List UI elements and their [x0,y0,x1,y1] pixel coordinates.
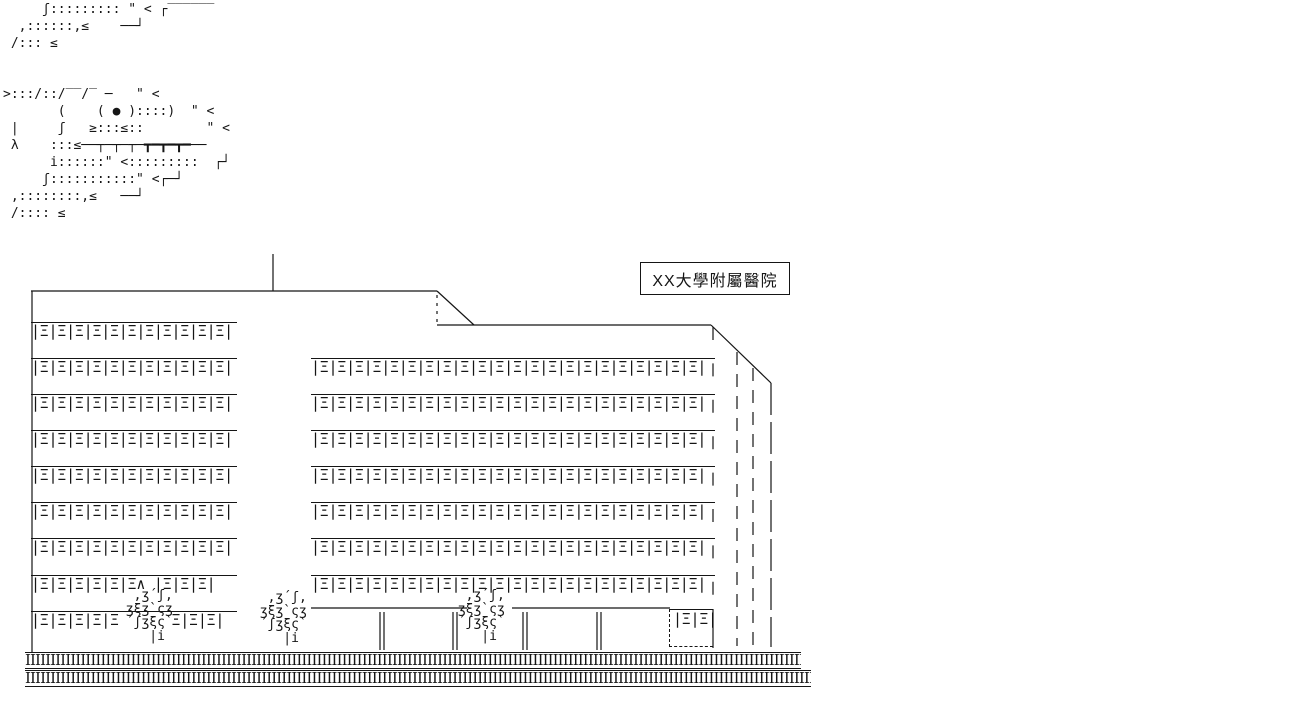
hospital-name: XX大學附屬醫院 [652,267,777,291]
aa-line: ´ʃʒξς` [450,616,505,630]
aa-line: ʃ:::::::::::" <┌─┘ [3,171,230,188]
roof-junction-diagonal [437,291,474,325]
aa-line: ʒξʒ`ςʒ [118,603,173,617]
aa-line: λ :::≤──┬─┬─┬─┳━┳━┳━── [3,137,230,154]
tree: ,ʒ´ʃ, ʒξʒ`ςʒ ´ʃʒξς` |i [252,591,307,645]
aa-line: ,ʒ´ʃ, [118,589,173,603]
aa-line: ,ʒ´ʃ, [252,591,307,605]
ground-hatch: IIIIIIIIIIIIIIIIIIIIIIIIIIIIIIIIIIIIIIII… [25,652,801,669]
aa-line: ʒξʒ`ςʒ [252,605,307,619]
window-row: |Ξ|Ξ|Ξ|Ξ|Ξ|Ξ|Ξ|Ξ|Ξ|Ξ|Ξ|Ξ|Ξ|Ξ|Ξ|Ξ|Ξ|Ξ|Ξ|Ξ… [311,358,715,376]
window-row: |Ξ|Ξ|Ξ|Ξ|Ξ|Ξ|Ξ|Ξ|Ξ|Ξ|Ξ|Ξ|Ξ|Ξ|Ξ|Ξ|Ξ|Ξ|Ξ|Ξ… [311,430,715,448]
window-row: |Ξ|Ξ|Ξ|Ξ|Ξ|Ξ|Ξ|Ξ|Ξ|Ξ|Ξ| [31,322,237,340]
window-row: |Ξ|Ξ|Ξ|Ξ|Ξ|Ξ|Ξ|Ξ|Ξ|Ξ|Ξ|Ξ|Ξ|Ξ|Ξ|Ξ|Ξ|Ξ|Ξ|Ξ… [311,538,715,556]
tree: ,ʒ´ʃ, ʒξʒ`ςʒ ´ʃʒξς` |i [118,589,173,643]
aa-line [3,69,230,86]
window-row: |Ξ|Ξ|Ξ|Ξ|Ξ|Ξ|Ξ|Ξ|Ξ|Ξ|Ξ| [31,394,237,412]
window-row: |Ξ|Ξ|Ξ|Ξ|Ξ|Ξ|Ξ|Ξ|Ξ|Ξ|Ξ| [31,466,237,484]
window-row: |Ξ|Ξ|Ξ|Ξ|Ξ|Ξ|Ξ|Ξ|Ξ|Ξ|Ξ| [31,502,237,520]
entrance-kiosk: |Ξ|Ξ| [669,609,713,647]
aa-line: | ʃ ≥:::≤:: " < [3,120,230,137]
window-row: |Ξ|Ξ|Ξ|Ξ|Ξ|Ξ|Ξ|Ξ|Ξ|Ξ|Ξ| [31,358,237,376]
aa-line: /:::: ≤ [3,205,230,222]
aa-line: /::: ≤ [3,35,230,52]
tree: ,ʒ´ʃ, ʒξʒ`ςʒ ´ʃʒξς` |i [450,589,505,643]
aa-line: ´ʃʒξς` [252,618,307,632]
hospital-name-plate: XX大學附屬醫院 [640,262,790,295]
aa-line: |i [118,630,173,644]
window-row: |Ξ|Ξ|Ξ|Ξ|Ξ|Ξ|Ξ|Ξ|Ξ|Ξ|Ξ|Ξ|Ξ|Ξ|Ξ|Ξ|Ξ|Ξ|Ξ|Ξ… [311,575,715,593]
window-row: |Ξ|Ξ|Ξ|Ξ|Ξ|Ξ|Ξ|Ξ|Ξ|Ξ|Ξ|Ξ|Ξ|Ξ|Ξ|Ξ|Ξ|Ξ|Ξ|Ξ… [311,394,715,412]
ascii-art-page: ʃ::::::::: " < ┌‾‾‾‾‾‾ ,::::::,≤ ──┘ /::… [0,0,1300,715]
aa-line: ,::::::::,≤ ──┘ [3,188,230,205]
aa-line [3,52,230,69]
aa-line: ´ʃʒξς` [118,616,173,630]
aa-line: i::::::" <::::::::: ┌┘ [3,154,230,171]
aa-line: |i [450,630,505,644]
window-row: |Ξ|Ξ|Ξ|Ξ|Ξ|Ξ|Ξ|Ξ|Ξ|Ξ|Ξ| [31,430,237,448]
aa-line: ʃ::::::::: " < ┌‾‾‾‾‾‾ [3,1,230,18]
aa-line: >:::/::/‾‾/‾ ─ " < [3,86,230,103]
aa-line: ʒξʒ`ςʒ [450,603,505,617]
right-corner-diagonal [711,325,771,383]
aa-line: |i [252,632,307,646]
ground-hatch: IIIIIIIIIIIIIIIIIIIIIIIIIIIIIIIIIIIIIIII… [25,670,811,687]
window-row: |Ξ|Ξ|Ξ|Ξ|Ξ|Ξ|Ξ|Ξ|Ξ|Ξ|Ξ|Ξ|Ξ|Ξ|Ξ|Ξ|Ξ|Ξ|Ξ|Ξ… [311,466,715,484]
aa-line: ,ʒ´ʃ, [450,589,505,603]
window-row: |Ξ|Ξ|Ξ|Ξ|Ξ|Ξ|Ξ|Ξ|Ξ|Ξ|Ξ|Ξ|Ξ|Ξ|Ξ|Ξ|Ξ|Ξ|Ξ|Ξ… [311,502,715,520]
ascii-creature: ʃ::::::::: " < ┌‾‾‾‾‾‾ ,::::::,≤ ──┘ /::… [3,1,230,222]
window-row: |Ξ|Ξ|Ξ|Ξ|Ξ|Ξ|Ξ|Ξ|Ξ|Ξ|Ξ| [31,538,237,556]
aa-line: ( ( ● )::::) " < [3,103,230,120]
aa-line: ,::::::,≤ ──┘ [3,18,230,35]
